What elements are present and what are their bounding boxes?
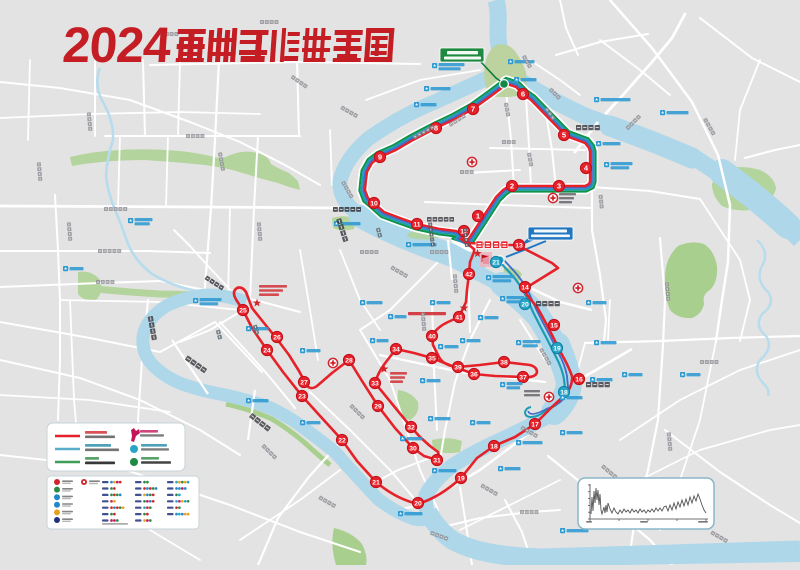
svg-text:42: 42 [465,271,473,278]
svg-text:11: 11 [413,221,420,228]
svg-text:6: 6 [521,89,525,98]
svg-text:32: 32 [407,424,415,431]
svg-text:26: 26 [273,334,281,341]
svg-text:40: 40 [428,333,436,340]
svg-text:27: 27 [300,379,308,386]
svg-text:13: 13 [515,242,523,249]
svg-text:30: 30 [409,445,417,452]
svg-text:2: 2 [510,181,514,190]
svg-text:23: 23 [298,393,306,400]
svg-text:33: 33 [371,380,379,387]
svg-text:14: 14 [521,284,529,291]
svg-text:20: 20 [521,301,529,308]
svg-text:28: 28 [345,357,353,364]
svg-text:41: 41 [455,314,463,321]
svg-text:39: 39 [454,364,462,371]
svg-text:3: 3 [557,181,561,190]
svg-text:29: 29 [374,403,382,410]
svg-text:21: 21 [492,259,500,266]
svg-text:25: 25 [239,307,247,314]
svg-text:24: 24 [263,347,271,354]
svg-text:36: 36 [470,371,478,378]
svg-text:17: 17 [531,421,539,428]
svg-text:37: 37 [519,374,527,381]
svg-text:21: 21 [372,479,380,486]
svg-text:19: 19 [457,475,465,482]
svg-text:19: 19 [553,345,561,352]
svg-text:9: 9 [378,152,382,161]
svg-text:8: 8 [434,123,438,132]
svg-text:10: 10 [370,200,378,207]
svg-text:38: 38 [500,359,508,366]
svg-text:31: 31 [433,457,441,464]
svg-text:20: 20 [414,500,422,507]
svg-text:2024: 2024 [61,17,173,73]
svg-text:16: 16 [575,376,583,383]
svg-text:7: 7 [471,104,475,113]
svg-text:34: 34 [392,346,400,353]
svg-text:18: 18 [490,443,498,450]
svg-text:35: 35 [428,355,436,362]
svg-text:15: 15 [550,322,558,329]
svg-text:22: 22 [338,437,346,444]
